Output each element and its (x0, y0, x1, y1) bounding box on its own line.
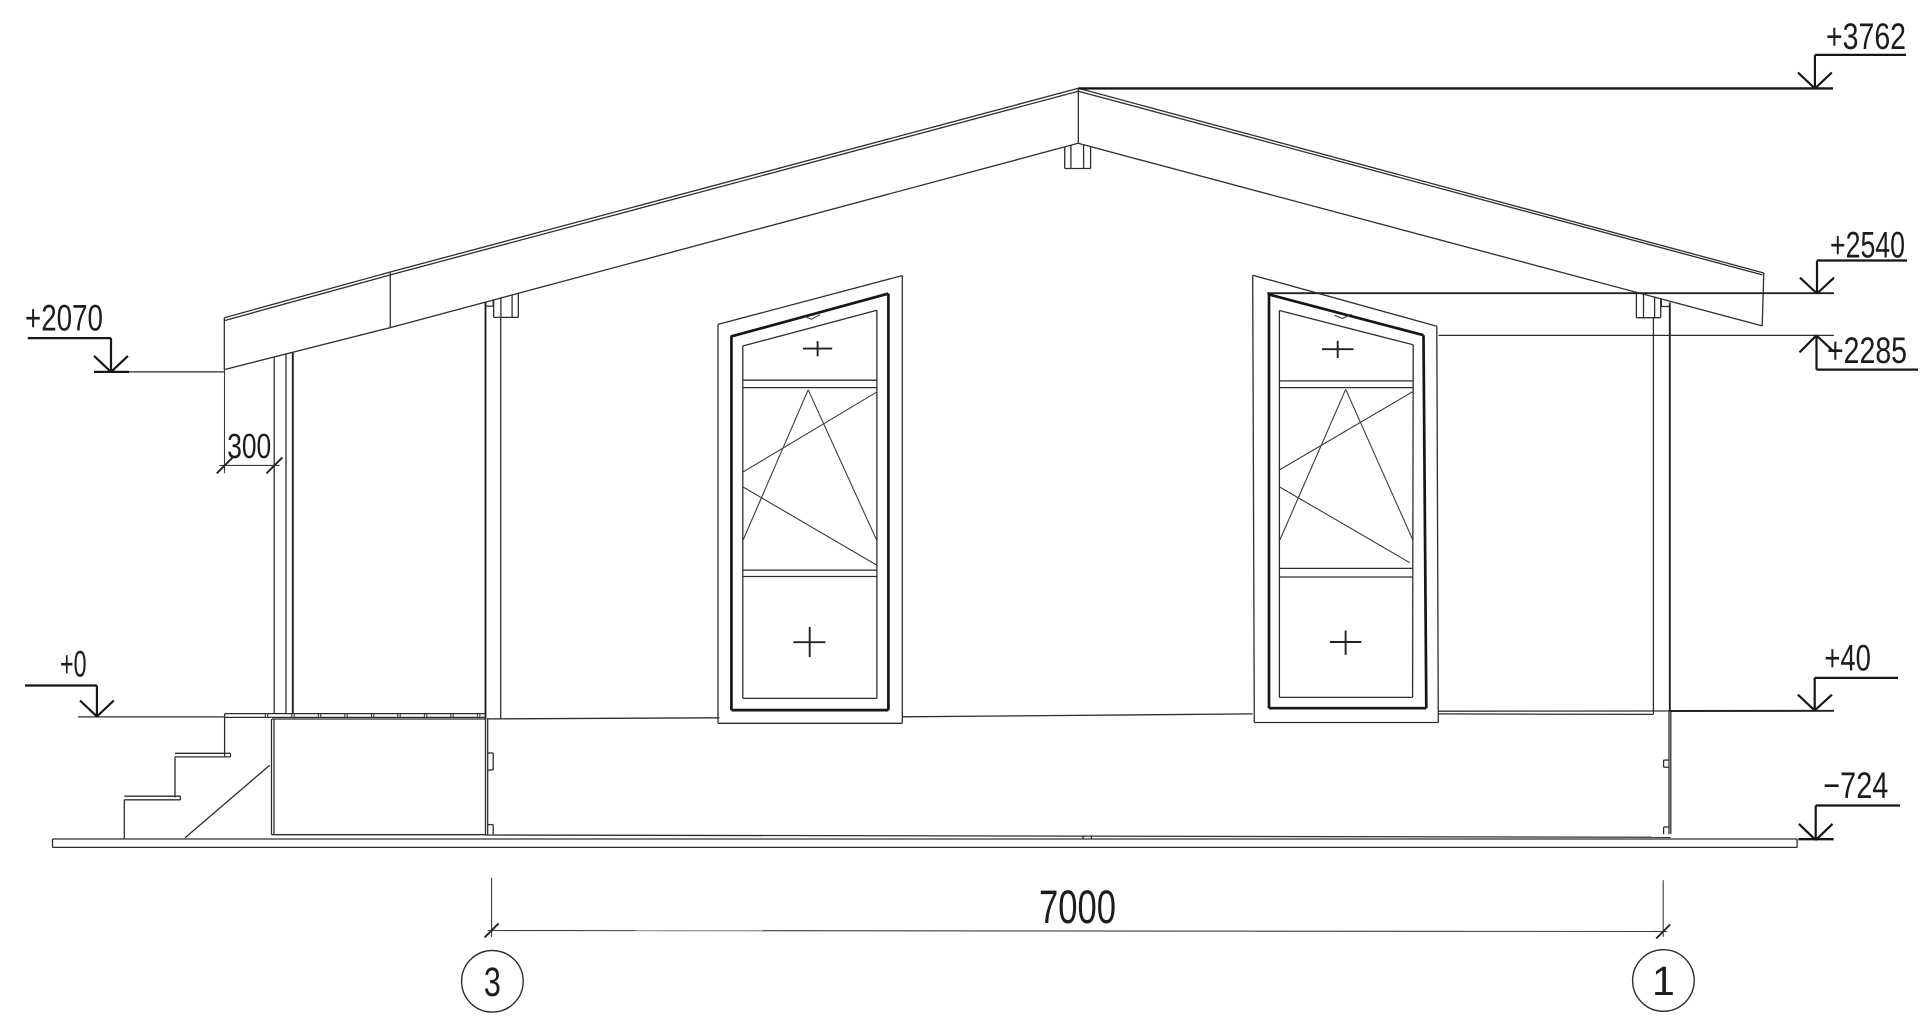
svg-text:+40: +40 (1824, 637, 1871, 678)
svg-text:+2540: +2540 (1830, 225, 1905, 266)
svg-text:300: 300 (227, 427, 271, 466)
svg-text:−724: −724 (1823, 765, 1888, 806)
svg-text:1: 1 (1652, 958, 1675, 1004)
svg-text:3: 3 (484, 959, 501, 1005)
svg-text:+2285: +2285 (1827, 330, 1907, 371)
svg-text:+2070: +2070 (25, 298, 103, 339)
svg-text:7000: 7000 (1039, 880, 1116, 933)
svg-text:+0: +0 (60, 644, 87, 685)
svg-text:+3762: +3762 (1826, 16, 1906, 57)
